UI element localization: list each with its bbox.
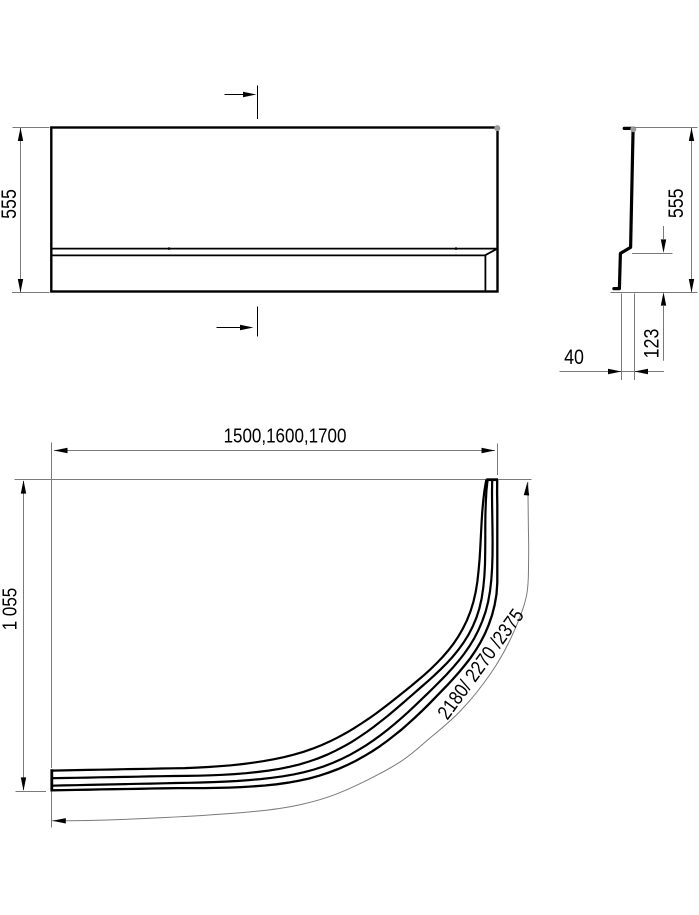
svg-text:1 055: 1 055	[0, 588, 21, 631]
svg-text:555: 555	[665, 188, 689, 218]
svg-text:123: 123	[640, 329, 664, 359]
svg-text:40: 40	[564, 346, 584, 370]
svg-text:1500,1600,1700: 1500,1600,1700	[224, 424, 347, 447]
svg-text:555: 555	[0, 189, 21, 219]
